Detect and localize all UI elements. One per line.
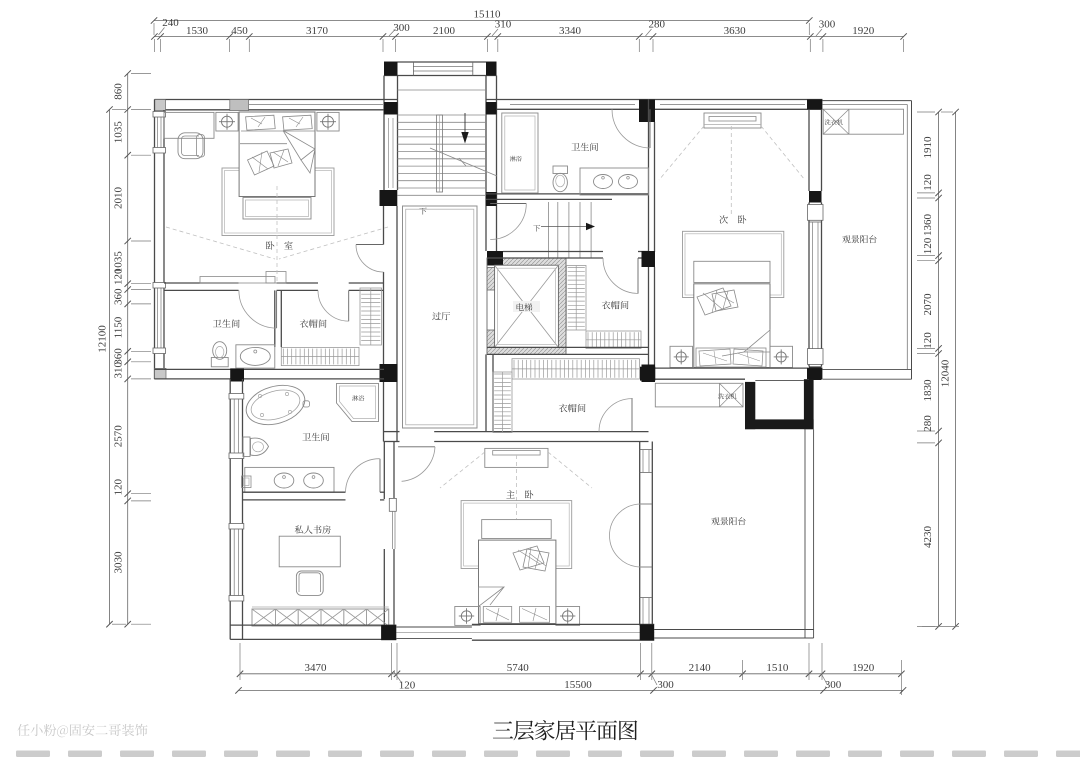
- svg-text:120: 120: [113, 268, 125, 285]
- svg-text:360: 360: [113, 288, 125, 305]
- svg-text:4230: 4230: [922, 526, 934, 549]
- svg-text:120: 120: [399, 680, 416, 692]
- svg-text:1830: 1830: [922, 379, 934, 402]
- svg-text:310: 310: [495, 19, 512, 31]
- svg-text:300: 300: [657, 679, 674, 691]
- svg-text:12040: 12040: [940, 359, 952, 387]
- svg-text:3030: 3030: [113, 551, 125, 574]
- svg-text:240: 240: [162, 17, 179, 29]
- svg-text:1510: 1510: [766, 662, 789, 674]
- svg-text:120: 120: [922, 237, 934, 254]
- svg-text:2010: 2010: [113, 187, 125, 210]
- svg-text:1035: 1035: [113, 121, 125, 144]
- svg-text:5740: 5740: [507, 662, 530, 674]
- svg-text:300: 300: [819, 19, 836, 31]
- svg-text:120: 120: [113, 479, 125, 496]
- svg-text:1360: 1360: [922, 214, 934, 237]
- svg-text:3340: 3340: [559, 25, 582, 37]
- svg-text:2070: 2070: [922, 293, 934, 316]
- svg-text:450: 450: [231, 25, 248, 37]
- svg-text:1920: 1920: [852, 25, 875, 37]
- svg-text:300: 300: [393, 22, 410, 34]
- svg-text:310: 310: [113, 362, 125, 379]
- svg-text:3170: 3170: [306, 25, 329, 37]
- svg-text:1530: 1530: [186, 25, 209, 37]
- svg-text:120: 120: [922, 332, 934, 349]
- svg-text:1910: 1910: [922, 136, 934, 159]
- svg-text:1150: 1150: [113, 316, 125, 338]
- svg-text:120: 120: [922, 174, 934, 191]
- svg-text:2100: 2100: [433, 25, 456, 37]
- svg-text:2140: 2140: [689, 662, 712, 674]
- svg-text:300: 300: [825, 679, 842, 691]
- svg-text:280: 280: [922, 415, 934, 432]
- svg-text:12100: 12100: [97, 325, 109, 353]
- svg-text:860: 860: [113, 83, 125, 100]
- svg-text:3470: 3470: [305, 662, 328, 674]
- svg-text:1920: 1920: [852, 662, 875, 674]
- svg-text:280: 280: [649, 19, 666, 31]
- svg-text:3630: 3630: [724, 25, 747, 37]
- svg-text:2570: 2570: [113, 425, 125, 448]
- svg-text:15500: 15500: [564, 679, 592, 691]
